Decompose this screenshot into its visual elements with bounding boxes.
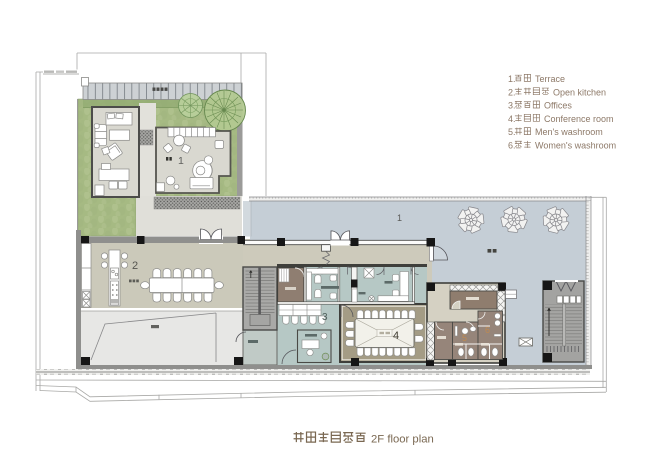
svg-text:2: 2 xyxy=(132,260,138,272)
svg-text:5.: 5. xyxy=(508,127,516,137)
svg-text:Women's washroom: Women's washroom xyxy=(535,141,616,151)
svg-text:1: 1 xyxy=(397,213,402,223)
svg-text:Conference room: Conference room xyxy=(544,114,614,124)
svg-text:5: 5 xyxy=(462,333,467,343)
svg-text:1.: 1. xyxy=(508,74,516,84)
svg-text:Men's washroom: Men's washroom xyxy=(535,127,603,137)
svg-text:3.: 3. xyxy=(508,101,516,111)
svg-text:4: 4 xyxy=(393,330,399,342)
svg-text:2F floor plan: 2F floor plan xyxy=(371,434,434,446)
svg-text:1: 1 xyxy=(178,155,184,167)
svg-text:3: 3 xyxy=(322,312,328,323)
svg-text:4.: 4. xyxy=(508,114,516,124)
svg-text:6.: 6. xyxy=(508,141,516,151)
svg-text:Terrace: Terrace xyxy=(535,74,565,84)
svg-text:Open kitchen: Open kitchen xyxy=(553,87,606,97)
svg-text:2.: 2. xyxy=(508,87,516,97)
svg-text:Offices: Offices xyxy=(544,101,572,111)
svg-text:6: 6 xyxy=(485,325,490,335)
